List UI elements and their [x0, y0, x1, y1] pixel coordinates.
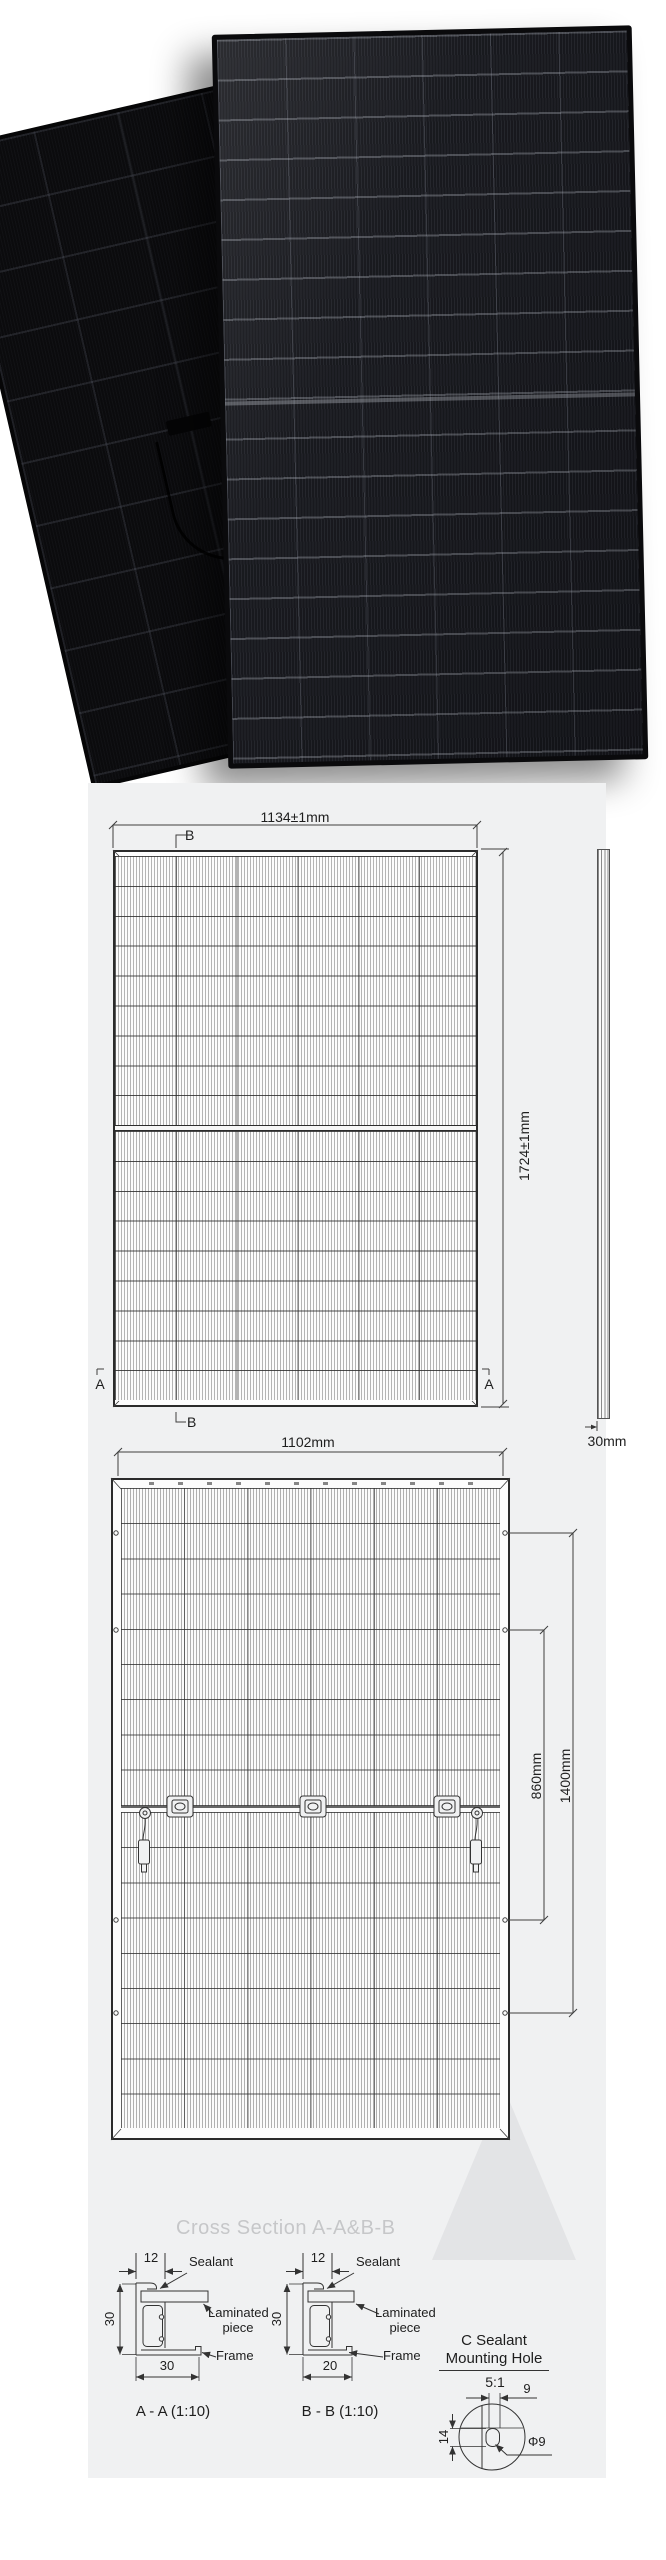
- front-height-dimension: 1724±1mm: [516, 1086, 532, 1206]
- hole-title-line2: Mounting Hole: [434, 2350, 554, 2367]
- aa-bottom-width: 30: [152, 2359, 182, 2374]
- aa-height: 30: [103, 2299, 117, 2339]
- aa-sealant-label: Sealant: [189, 2255, 233, 2270]
- bb-laminated-label-2: piece: [375, 2321, 435, 2336]
- back-width-dimension: 1102mm: [238, 1434, 378, 1450]
- hole-scale: 5:1: [475, 2374, 515, 2390]
- aa-laminated-label-2: piece: [208, 2321, 268, 2336]
- bb-height: 30: [270, 2299, 284, 2339]
- hole-height: 14: [437, 2417, 451, 2457]
- bb-top-width: 12: [303, 2251, 333, 2266]
- back-view-cells-bottom: [121, 1812, 500, 2128]
- back-view-drawing: [111, 1478, 510, 2140]
- side-view-drawing: [597, 849, 610, 1419]
- bb-sealant-label: Sealant: [356, 2255, 400, 2270]
- back-outer-span-dimension: 1400mm: [557, 1716, 573, 1836]
- aa-laminated-label-1: Laminated: [208, 2306, 268, 2321]
- cross-section-title: Cross Section A-A&B-B: [176, 2217, 395, 2240]
- front-view-drawing: [113, 850, 478, 1407]
- aa-top-width: 12: [136, 2251, 166, 2266]
- glass-reflection: [217, 30, 643, 763]
- hole-width: 9: [520, 2382, 534, 2397]
- bb-frame-label: Frame: [383, 2349, 421, 2364]
- product-photo: [0, 0, 666, 783]
- bb-bottom-width: 20: [315, 2359, 345, 2374]
- frame-drain-slots: [125, 1482, 496, 1485]
- front-view-cells-bottom: [115, 1131, 476, 1400]
- section-marker-a-left: A: [92, 1376, 108, 1392]
- front-view-cells-top: [115, 856, 476, 1125]
- back-view-cells-top: [121, 1488, 500, 1806]
- front-width-dimension: 1134±1mm: [225, 809, 365, 825]
- hole-diameter: Φ9: [528, 2435, 546, 2450]
- technical-drawing-sheet: 1134±1mm B A A B 1724±1mm 30mm 1102mm 86…: [88, 783, 606, 2478]
- section-marker-b-bottom: B: [187, 1414, 196, 1430]
- thickness-dimension: 30mm: [574, 1433, 640, 1449]
- section-marker-a-right: A: [481, 1376, 497, 1392]
- section-marker-b-top: B: [185, 827, 194, 843]
- hole-title-line1: C Sealant: [439, 2332, 549, 2349]
- aa-caption: A - A (1:10): [128, 2403, 218, 2420]
- solar-panel-front-photo: [212, 25, 649, 768]
- aa-frame-label: Frame: [216, 2349, 254, 2364]
- bb-caption: B - B (1:10): [295, 2403, 385, 2420]
- bb-laminated-label-1: Laminated: [375, 2306, 435, 2321]
- back-inner-span-dimension: 860mm: [528, 1716, 544, 1836]
